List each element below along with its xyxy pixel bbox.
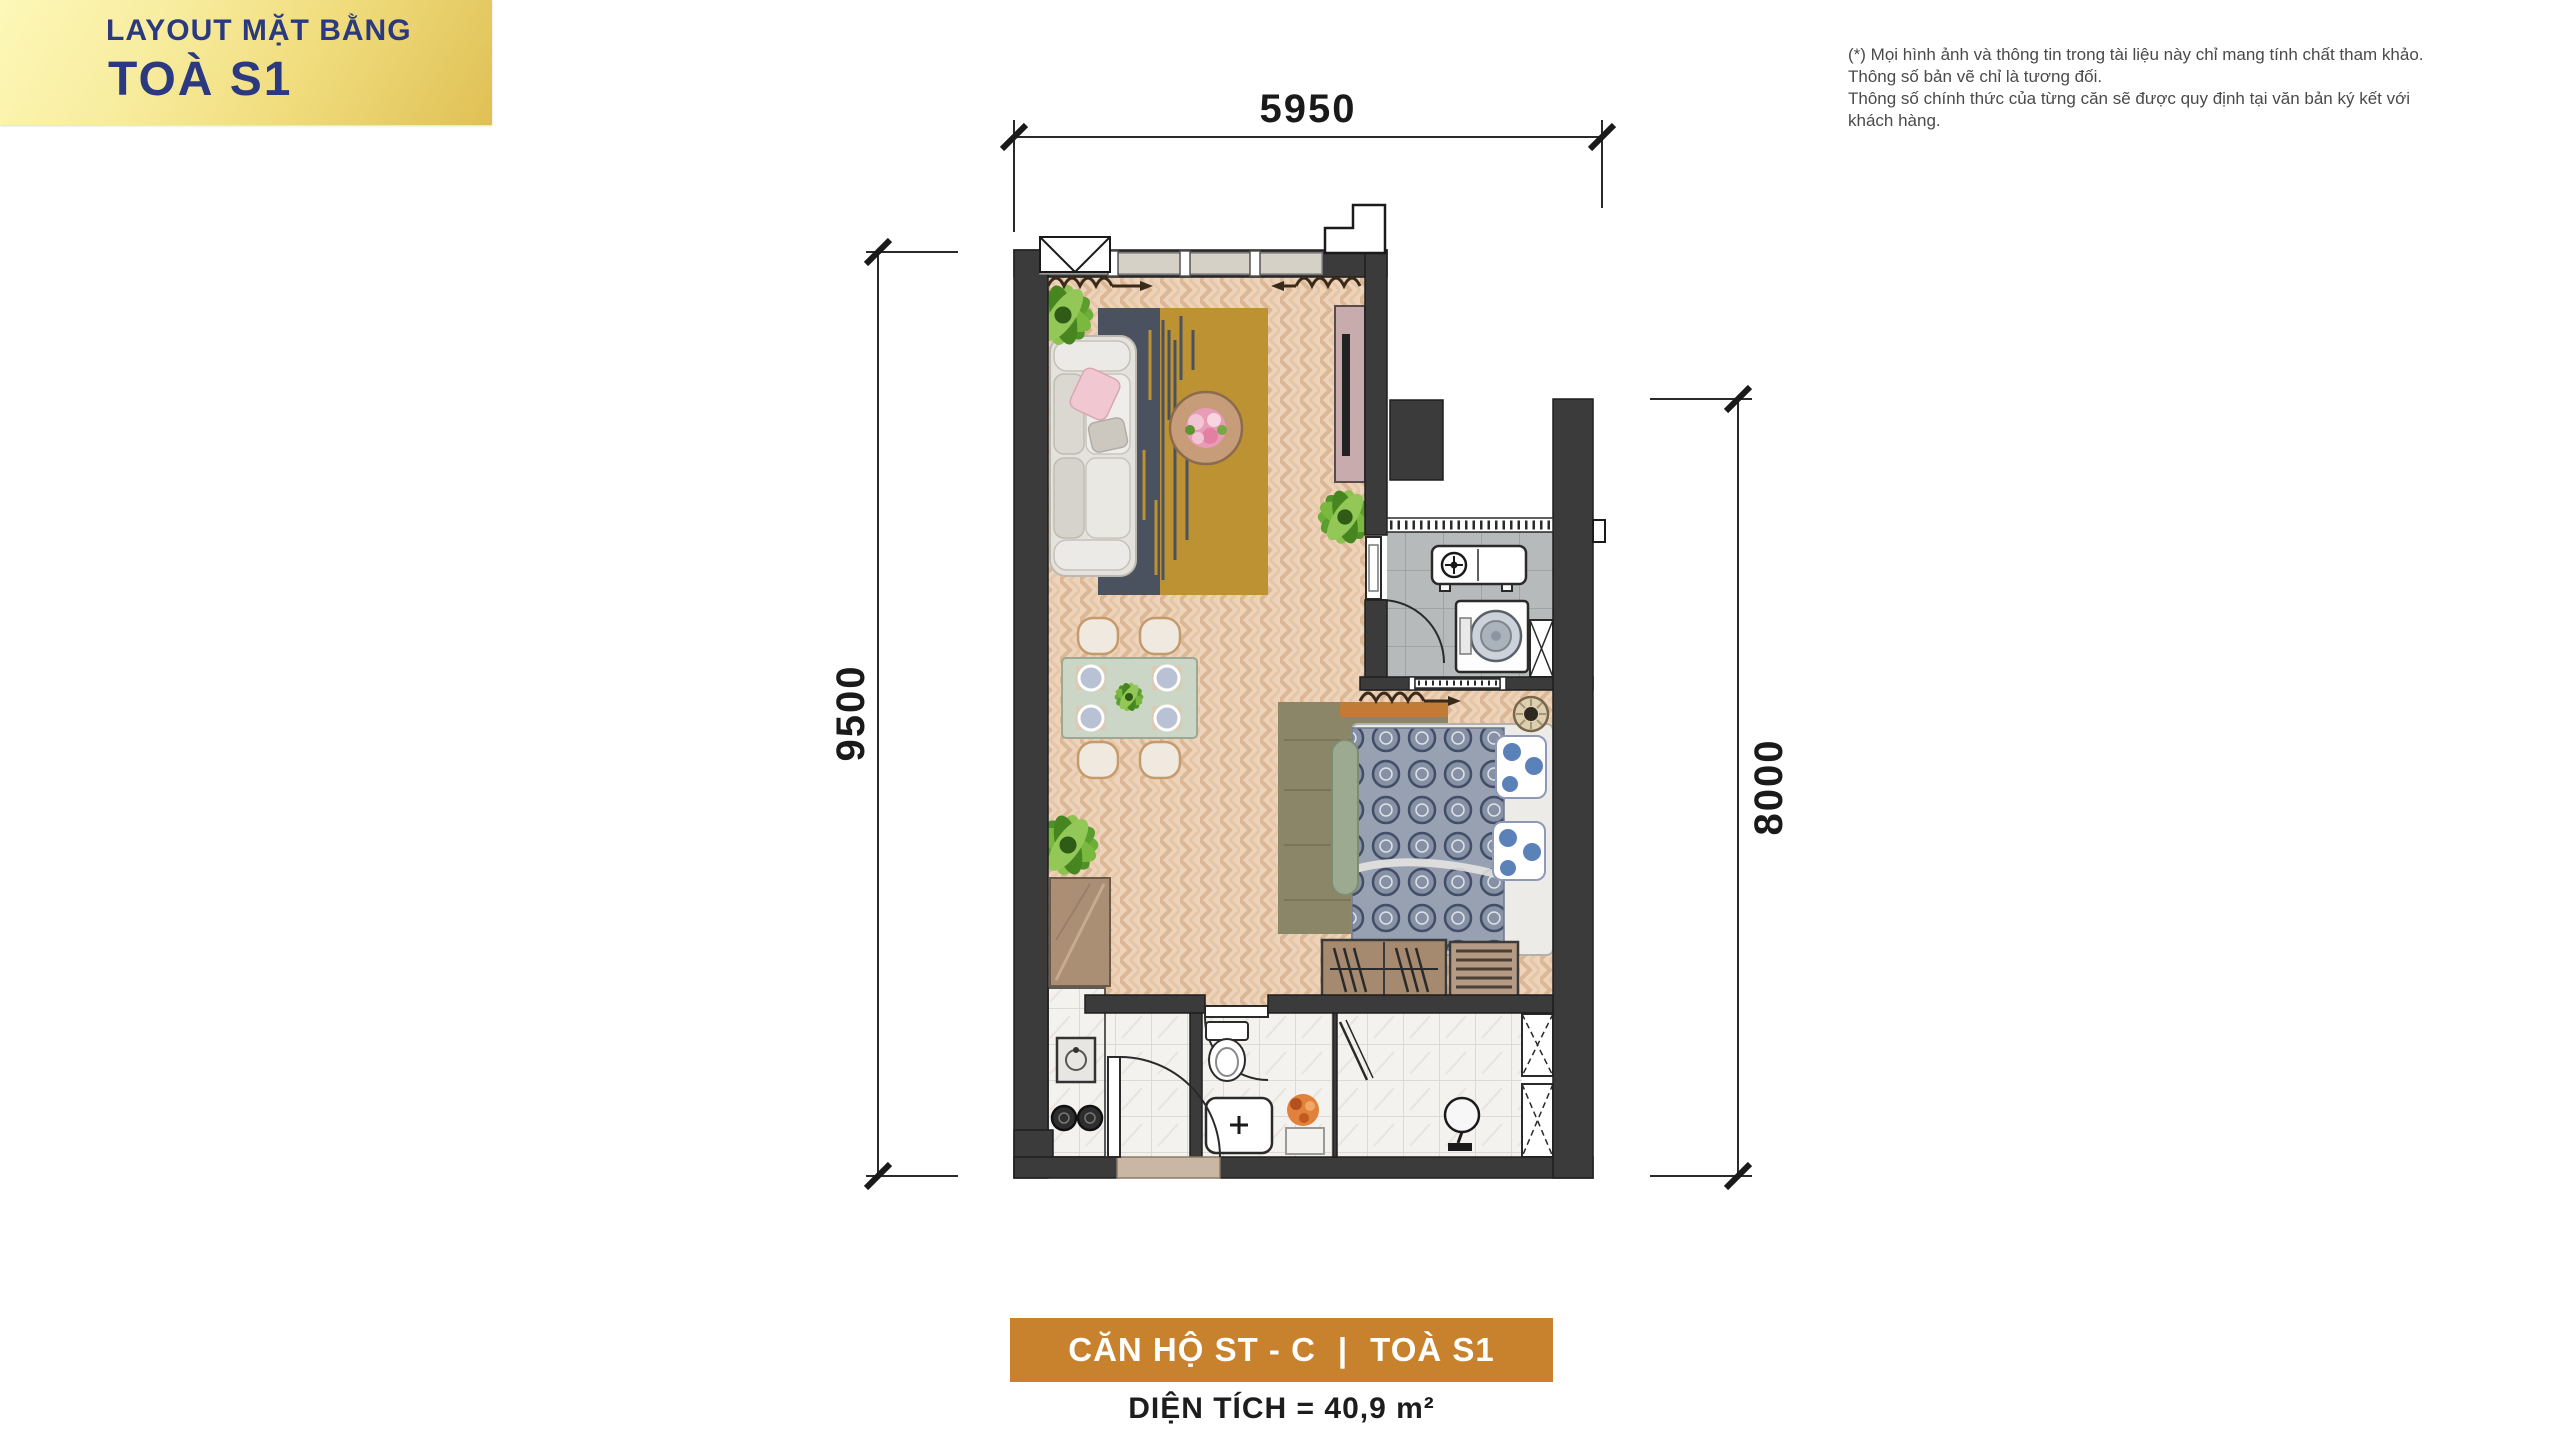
green-bolster <box>1332 740 1358 895</box>
shower-head-icon <box>1445 1098 1479 1132</box>
kitchen-shaft <box>1530 620 1553 677</box>
entry-door-outline <box>1325 205 1385 253</box>
duvet <box>1352 728 1504 950</box>
tower-label: TOÀ S1 <box>1370 1331 1495 1369</box>
sofa <box>1050 336 1136 576</box>
ac-unit <box>1040 237 1110 272</box>
dining-chair <box>1078 742 1118 778</box>
dining-chair <box>1140 618 1180 654</box>
dim-right-label: 8000 <box>1747 739 1791 836</box>
dim-left-label: 9500 <box>829 665 873 762</box>
dining-chair <box>1078 618 1118 654</box>
basket <box>1514 697 1548 731</box>
side-cabinet <box>1050 878 1110 986</box>
interior-window <box>1409 677 1506 690</box>
entry-threshold <box>1117 1157 1220 1178</box>
vent-unit <box>1450 942 1518 996</box>
wardrobe <box>1322 940 1446 998</box>
separator: | <box>1338 1331 1348 1369</box>
area-label: DIỆN TÍCH = 40,9 m² <box>1010 1392 1553 1426</box>
kitchen-window-strip <box>1387 518 1553 532</box>
unit-banner: CĂN HỘ ST - C | TOÀ S1 <box>1010 1318 1553 1382</box>
cooktop-burner-icon <box>1052 1106 1076 1130</box>
toilet <box>1206 1022 1248 1081</box>
bath-shaft <box>1522 1014 1553 1157</box>
coffee-table <box>1170 392 1242 464</box>
floor-plan: 5950 9500 8000 <box>0 0 2560 1447</box>
tv-console <box>1335 306 1365 482</box>
dining-chair <box>1140 742 1180 778</box>
cooktop-burner-icon <box>1078 1106 1102 1130</box>
bed <box>1332 724 1553 955</box>
dim-top-label: 5950 <box>1260 87 1357 131</box>
stove-counter <box>1432 546 1526 591</box>
unit-label: CĂN HỘ ST - C <box>1068 1331 1316 1369</box>
wall-notch <box>1593 520 1605 542</box>
washing-machine <box>1456 601 1528 672</box>
page: LAYOUT MẶT BẰNG TOÀ S1 (*) Mọi hình ảnh … <box>0 0 2560 1447</box>
sink <box>1057 1038 1095 1082</box>
tv <box>1342 334 1350 456</box>
